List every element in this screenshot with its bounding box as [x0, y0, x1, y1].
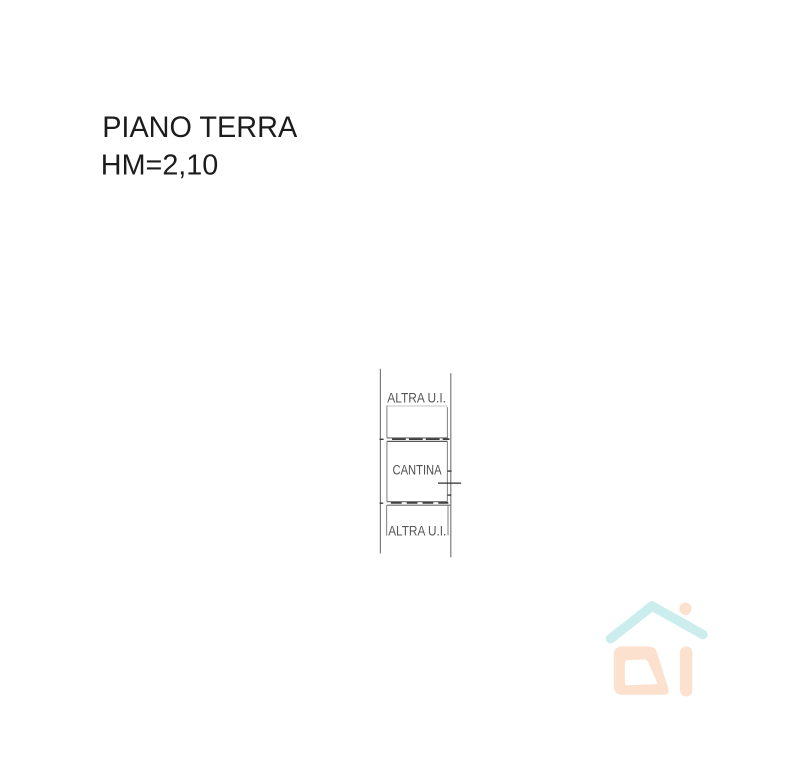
- svg-text:ALTRA U.I.: ALTRA U.I.: [387, 390, 446, 405]
- svg-text:CANTINA: CANTINA: [393, 463, 443, 479]
- svg-text:HM=2,10: HM=2,10: [101, 150, 219, 182]
- svg-text:PIANO TERRA: PIANO TERRA: [102, 111, 297, 144]
- svg-text:ALTRA U.I.: ALTRA U.I.: [388, 523, 446, 538]
